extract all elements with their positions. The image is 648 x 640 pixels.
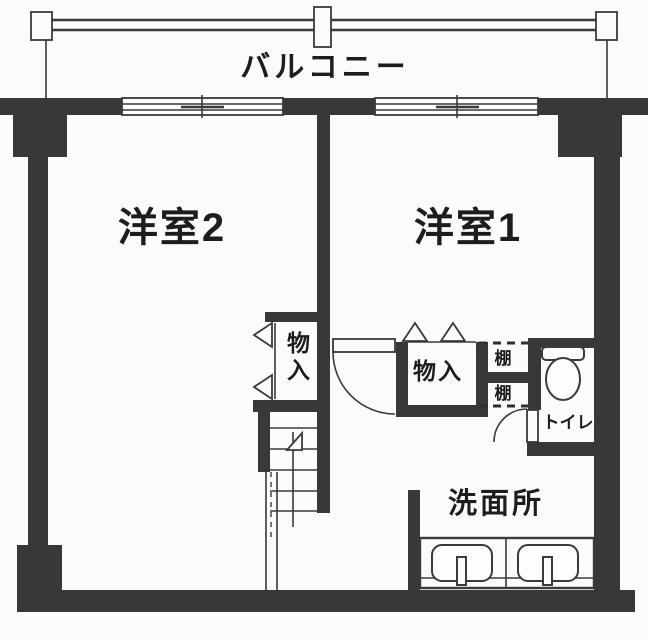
stairs	[266, 428, 317, 590]
toilet-door-arc	[494, 409, 527, 442]
floor-plan: バルコニー 洋室2 洋室1 物入 物入 棚 棚 トイレ 洗面所	[0, 0, 648, 640]
wall-storage-mid-bottom	[396, 405, 488, 417]
toilet-label: トイレ	[543, 414, 594, 431]
toilet-bowl-icon	[546, 358, 580, 400]
shelf-bottom-label: 棚	[495, 385, 512, 402]
folding-door-icon	[403, 323, 427, 341]
folding-door-icon	[254, 323, 272, 347]
floor-plan-drawing	[0, 0, 648, 640]
room2-label: 洋室2	[118, 208, 226, 248]
room1-door-arc	[333, 352, 395, 414]
shelf-top-label: 棚	[495, 350, 512, 367]
wall-shelf-divider	[479, 372, 528, 383]
wall-toilet-left	[528, 338, 541, 410]
storage-left-label: 物入	[285, 331, 308, 385]
wall-left-column	[28, 115, 48, 592]
storage-mid-label: 物入	[413, 360, 463, 383]
wall-stairs-left	[258, 412, 270, 472]
vanity	[420, 538, 594, 588]
room1-door-leaf	[333, 339, 395, 352]
wall-toilet-bottom	[527, 442, 594, 456]
balcony-post-middle	[314, 7, 331, 47]
folding-door-icon	[254, 375, 272, 399]
toilet-fixture-icon	[542, 347, 584, 400]
balcony-post-right	[596, 12, 617, 40]
balcony-label: バルコニー	[240, 53, 409, 83]
wall-right-column	[594, 115, 620, 592]
pillar-bottom-left	[17, 545, 62, 592]
washroom-label: 洗面所	[448, 490, 544, 519]
faucet-icon	[543, 557, 552, 585]
wall-washroom-left	[408, 490, 420, 590]
faucet-icon	[457, 557, 466, 585]
toilet-door-leaf	[527, 410, 538, 442]
wall-storage-left-bottom	[253, 400, 330, 412]
balcony-post-left	[31, 12, 52, 40]
wall-storage-left-top	[265, 312, 317, 322]
stair-direction-arrow-icon	[287, 433, 302, 450]
wall-center-divider	[317, 115, 330, 513]
wall-top	[0, 98, 648, 115]
wall-bottom	[17, 590, 635, 612]
folding-door-icon	[441, 323, 465, 341]
room1-label: 洋室1	[414, 208, 522, 248]
